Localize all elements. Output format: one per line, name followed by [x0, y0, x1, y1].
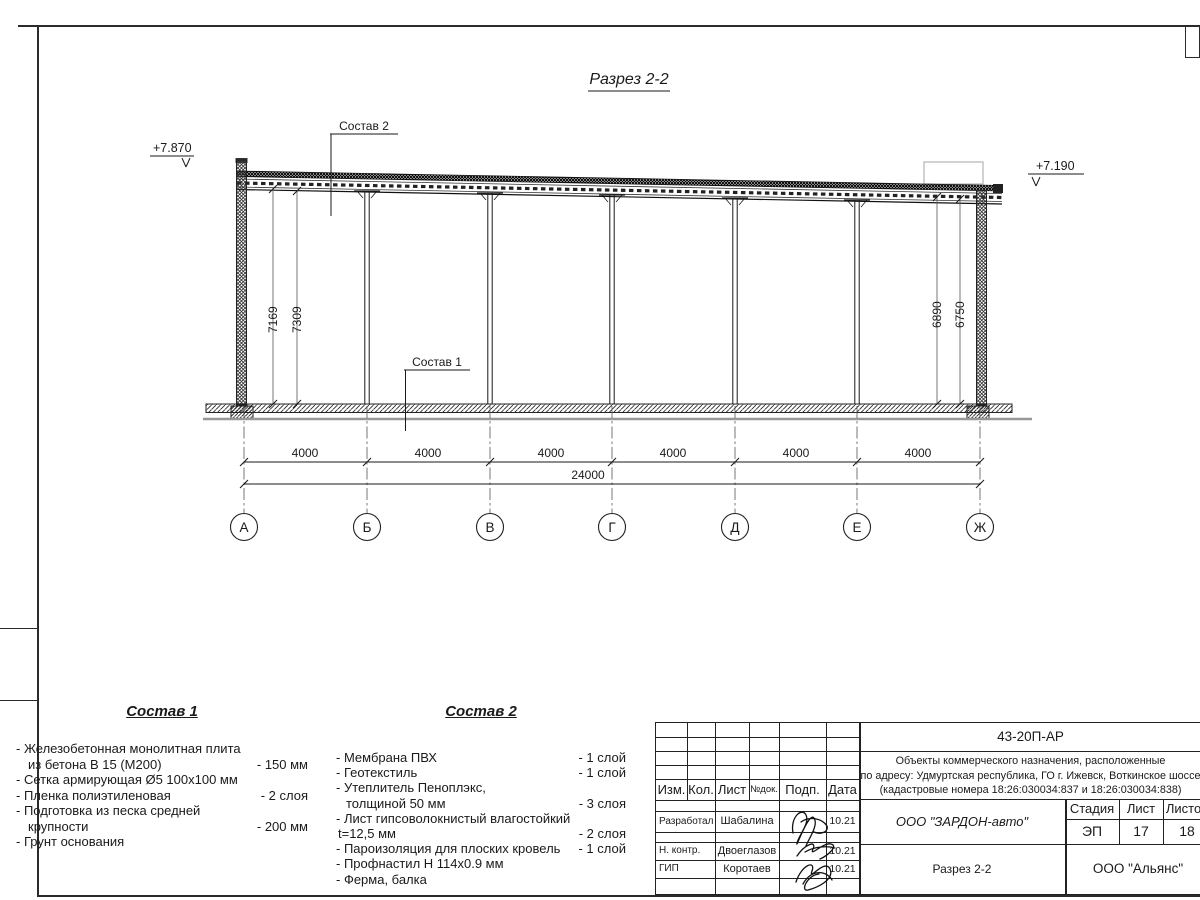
axis-label-e: Е [852, 520, 861, 535]
list-item: - Утеплитель Пеноплэкс, [336, 780, 626, 795]
elevation-right-text: +7.190 [1036, 159, 1075, 173]
stamp-role-3: ГИП [659, 860, 715, 878]
stamp-stage-value: ЭП [1065, 819, 1119, 844]
vdim-6890: 6890 [930, 301, 944, 328]
stamp-name-3: Коротаев [715, 860, 779, 878]
stamp-client: ООО "ЗАРДОН-авто" [859, 799, 1065, 844]
axis-label-b: Б [363, 520, 372, 535]
drawing-title-text: Разрез 2-2 [589, 71, 668, 88]
axis-bubbles: А Б В Г Д Е Ж [231, 514, 994, 541]
composition-2-rows: - Мембрана ПВХ- 1 слой - Геотекстиль- 1 … [336, 750, 626, 887]
list-item: - Железобетонная монолитная плита [16, 741, 308, 757]
roof-parapet-outline [924, 162, 983, 184]
stamp-contractor: ООО "Альянс" [1065, 844, 1200, 894]
right-wall [977, 190, 987, 405]
list-item: из бетона В 15 (М200)- 150 мм [16, 757, 308, 773]
stamp-date-2: 10.21 [826, 842, 859, 860]
list-item: - Грунт основания [16, 834, 308, 850]
axis-label-g: Г [608, 520, 616, 535]
list-item: - Пленка полиэтиленовая- 2 слоя [16, 788, 308, 804]
columns [354, 191, 870, 404]
composition-2-heading: Состав 2 [336, 704, 626, 720]
list-item: - Ферма, балка [336, 872, 626, 887]
bay-dim-1: 4000 [292, 446, 319, 460]
bay-dim-6: 4000 [905, 446, 932, 460]
elevation-mark-right: +7.190 [1028, 159, 1084, 186]
stamp-sheet-title: Разрез 2-2 [859, 844, 1065, 894]
frame-bottom [37, 895, 1200, 897]
stamp-doc-number: 43-20П-АР [859, 723, 1200, 751]
total-dim: 24000 [571, 468, 605, 482]
stamp-date-3: 10.21 [826, 860, 859, 878]
list-item: - Мембрана ПВХ- 1 слой [336, 750, 626, 765]
title-block: Изм. Кол. Лист №док. Подп. Дата Разработ… [655, 722, 1200, 895]
drawing-title: Разрез 2-2 [588, 71, 670, 91]
vertical-dimensions: 7169 7309 6890 6750 [266, 185, 967, 408]
composition-1-heading: Состав 1 [16, 704, 308, 720]
vdim-6750: 6750 [953, 301, 967, 328]
stamp-role-1: Разработал [659, 811, 715, 832]
stamp-sheet-value: 17 [1119, 819, 1163, 844]
bay-dim-2: 4000 [415, 446, 442, 460]
callout-sostav-2: Состав 2 [330, 119, 398, 216]
stamp-col-kol: Кол. [687, 779, 715, 800]
frame-tick-2 [0, 700, 37, 701]
composition-list-2: Состав 2 - Мембрана ПВХ- 1 слой - Геотек… [336, 704, 626, 889]
floor-slab [203, 404, 1032, 419]
stamp-col-data: Дата [826, 779, 859, 800]
section-drawing: Разрез 2-2 [0, 0, 1200, 600]
stamp-sheets-value: 18 [1163, 819, 1200, 844]
drawing-sheet: Разрез 2-2 [0, 0, 1200, 900]
project-line-1: Объекты коммерческого назначения, распол… [859, 754, 1200, 769]
project-line-3: (кадастровые номера 18:26:030034:837 и 1… [859, 783, 1200, 798]
stamp-date-1: 10.21 [826, 811, 859, 832]
list-item: - Профнастил Н 114х0.9 мм [336, 856, 626, 871]
axis-label-d: Д [730, 520, 739, 535]
axis-label-v: В [485, 520, 494, 535]
roof-assembly [237, 171, 1003, 204]
stamp-col-podp: Подп. [779, 779, 826, 800]
list-item: t=12,5 мм- 2 слоя [336, 826, 626, 841]
callout-sostav1-text: Состав 1 [412, 355, 462, 369]
stamp-sheets-header: Листов [1163, 799, 1200, 819]
list-item: - Подготовка из песка средней [16, 803, 308, 819]
list-item: - Геотекстиль- 1 слой [336, 765, 626, 780]
axis-label-a: А [239, 520, 248, 535]
stamp-stage-header: Стадия [1065, 799, 1119, 819]
axis-lines [244, 406, 980, 513]
elevation-mark-left: +7.870 [150, 141, 194, 167]
list-item: - Сетка армирующая Ø5 100х100 мм [16, 772, 308, 788]
stamp-sheet-header: Лист [1119, 799, 1163, 819]
bay-dim-4: 4000 [660, 446, 687, 460]
bay-dim-5: 4000 [783, 446, 810, 460]
bay-dim-3: 4000 [538, 446, 565, 460]
list-item: - Лист гипсоволокнистый влагостойкий [336, 811, 626, 826]
stamp-col-list: Лист [715, 779, 749, 800]
elevation-left-text: +7.870 [153, 141, 192, 155]
stamp-name-1: Шабалина [715, 811, 779, 832]
vdim-7169: 7169 [266, 306, 280, 333]
vdim-7309: 7309 [290, 306, 304, 333]
left-wall [236, 158, 248, 405]
callout-sostav2-text: Состав 2 [339, 119, 389, 133]
stamp-col-ndok: №док. [749, 779, 779, 800]
frame-tick-1 [0, 628, 37, 629]
list-item: - Пароизоляция для плоских кровель- 1 сл… [336, 841, 626, 856]
stamp-name-2: Двоеглазов [715, 842, 779, 860]
signature-1 [793, 812, 828, 846]
stamp-col-izm: Изм. [656, 779, 687, 800]
composition-1-rows: - Железобетонная монолитная плита из бет… [16, 741, 308, 850]
axis-label-zh: Ж [974, 520, 987, 535]
list-item: крупности- 200 мм [16, 819, 308, 835]
stamp-role-2: Н. контр. [659, 842, 715, 860]
stamp-project-name: Объекты коммерческого назначения, распол… [859, 754, 1200, 798]
project-line-2: по адресу: Удмуртская республика, ГО г. … [859, 769, 1200, 784]
list-item: толщиной 50 мм- 3 слоя [336, 796, 626, 811]
composition-list-1: Состав 1 - Железобетонная монолитная пли… [16, 704, 308, 864]
